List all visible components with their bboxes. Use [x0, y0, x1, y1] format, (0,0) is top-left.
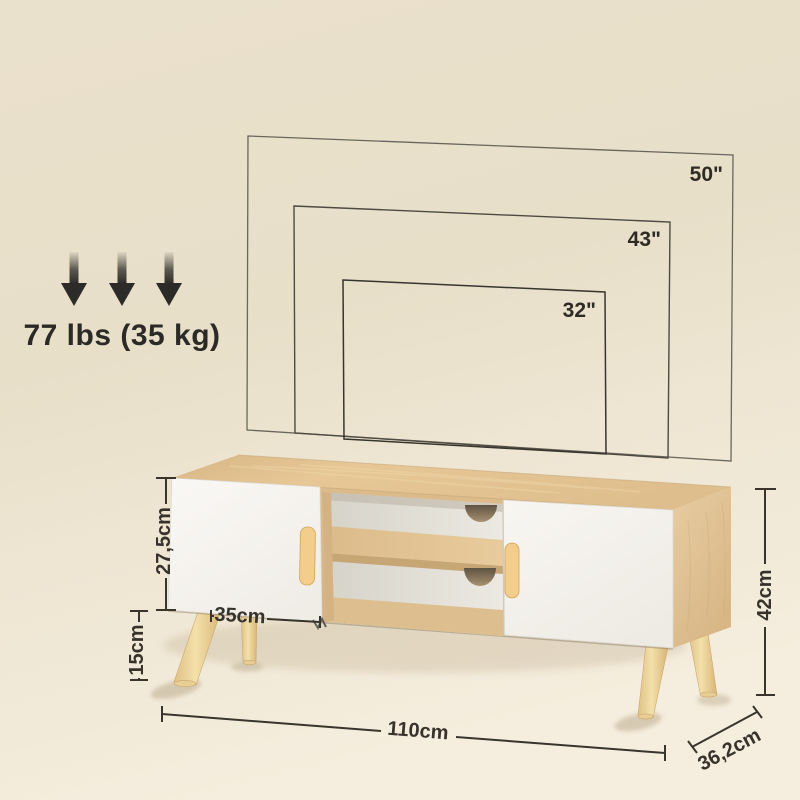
left-door	[168, 478, 322, 622]
dim-door-width-label: 35cm	[214, 604, 266, 629]
weight-capacity-label: 77 lbs (35 kg)	[23, 319, 220, 352]
open-compartment	[322, 492, 503, 636]
tv-size-label-43: 43"	[628, 228, 661, 251]
tv-size-label-32: 32"	[563, 299, 596, 322]
cabinet-side-panel	[673, 487, 731, 648]
dim-door-height-label: 27,5cm	[153, 507, 175, 575]
left-door-handle	[299, 527, 315, 585]
product-diagram: 50" 43" 32" 77 lbs (35 kg)	[0, 0, 800, 800]
tv-size-label-50: 50"	[690, 163, 723, 186]
background	[0, 0, 800, 800]
tv-stand-scene: 50" 43" 32" 77 lbs (35 kg)	[0, 0, 800, 800]
right-door	[503, 500, 673, 648]
dim-overall-height-label: 42cm	[754, 569, 776, 620]
dim-leg-height-label: 15cm	[126, 624, 148, 675]
right-door-handle	[505, 543, 519, 598]
